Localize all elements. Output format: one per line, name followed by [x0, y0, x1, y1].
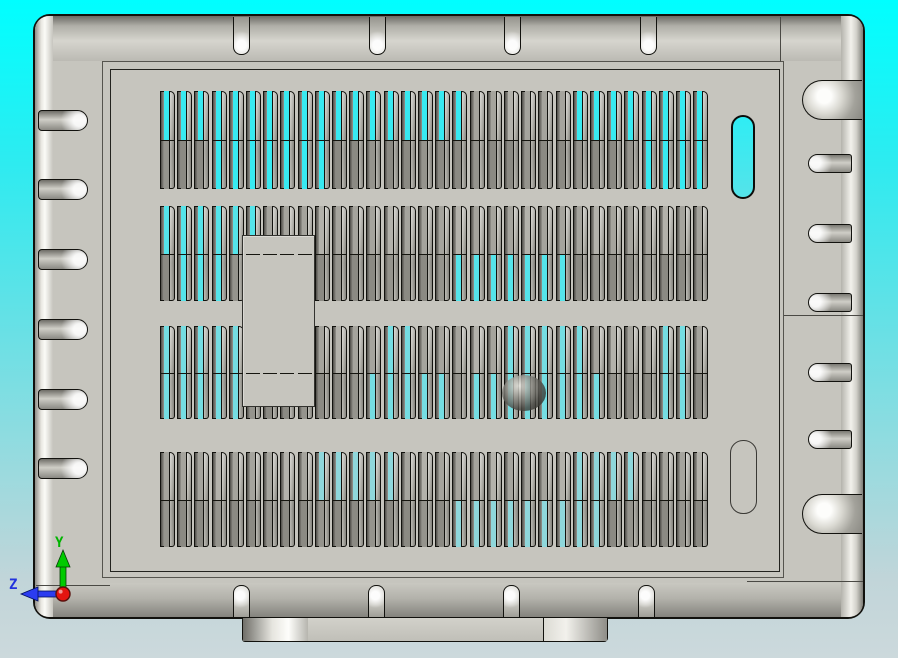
top-edge-tab: [504, 17, 521, 55]
vent-slot: [280, 91, 295, 189]
vent-slot: [366, 452, 381, 547]
vent-slot: [160, 452, 175, 547]
vent-slot-opening-top: [216, 326, 221, 373]
vent-slot-seam: [590, 500, 604, 501]
vent-slot-seam: [194, 254, 208, 255]
vent-slot-seam: [521, 500, 535, 501]
vent-slot: [504, 452, 519, 547]
vent-slot: [470, 206, 485, 301]
vent-slot-seam: [401, 500, 415, 501]
vent-slot: [349, 206, 364, 301]
vent-slot: [470, 91, 485, 189]
vent-slot-opening-bottom: [474, 500, 479, 548]
vent-slot-seam: [590, 373, 604, 374]
vent-slot: [366, 91, 381, 189]
vent-slot-seam: [212, 500, 226, 501]
vent-slot: [573, 452, 588, 547]
vent-slot-opening-bottom: [388, 500, 393, 548]
vent-slot: [349, 452, 364, 547]
vent-slot-opening-top: [302, 91, 307, 140]
left-edge-tab: [38, 179, 88, 200]
vent-slot: [470, 452, 485, 547]
oval-cutout-slot: [731, 115, 755, 199]
vent-slot-seam: [659, 254, 673, 255]
vent-slot-seam: [573, 500, 587, 501]
vent-slot: [487, 206, 502, 301]
vent-slot-seam: [435, 254, 449, 255]
vent-slot-seam: [521, 373, 535, 374]
bottom-edge-face: [35, 583, 863, 617]
vent-slot-opening-top: [646, 326, 651, 373]
bottom-edge-tab: [368, 585, 385, 617]
vent-slot: [332, 91, 347, 189]
vent-slot-opening-bottom: [560, 254, 565, 302]
vent-slot-seam: [160, 140, 174, 141]
vent-slot-seam: [556, 140, 570, 141]
vent-slot-seam: [676, 500, 690, 501]
vent-slot: [384, 326, 399, 419]
vent-slot-seam: [349, 373, 363, 374]
vent-slot: [573, 206, 588, 301]
vent-slot-seam: [418, 140, 432, 141]
vent-slot-seam: [624, 140, 638, 141]
vent-slot: [384, 452, 399, 547]
vent-slot: [246, 452, 261, 547]
vent-slot-seam: [366, 140, 380, 141]
vent-slot-seam: [659, 500, 673, 501]
vent-slot-opening-top: [474, 326, 479, 373]
vent-slot-opening-bottom: [302, 140, 307, 189]
origin-triad: Y Z: [8, 523, 100, 615]
vent-slot-opening-top: [388, 326, 393, 373]
vent-slot: [384, 91, 399, 189]
origin-point: [56, 587, 70, 601]
bottom-edge-tab: [638, 585, 655, 617]
vent-slot-opening-top: [474, 452, 479, 500]
vent-slot: [624, 452, 639, 547]
z-axis-arrowhead: [21, 587, 38, 601]
vent-slot: [315, 206, 330, 301]
vent-slot-seam: [160, 373, 174, 374]
right-edge-bump: [802, 494, 862, 534]
vent-slot-seam: [177, 254, 191, 255]
vent-slot: [229, 452, 244, 547]
vent-slot-seam: [315, 500, 329, 501]
vent-slot: [349, 326, 364, 419]
vent-slot-seam: [676, 140, 690, 141]
vent-slot: [556, 452, 571, 547]
vent-slot-seam: [229, 140, 243, 141]
vent-slot: [229, 91, 244, 189]
mounting-foot-right-segment: [543, 618, 607, 641]
vent-slot: [401, 91, 416, 189]
bottom-edge-tab: [503, 585, 520, 617]
vent-slot-opening-top: [474, 206, 479, 254]
vent-slot: [332, 206, 347, 301]
vent-slot-opening-bottom: [646, 500, 651, 548]
vent-slot: [590, 206, 605, 301]
vent-slot-seam: [349, 500, 363, 501]
vent-slot-opening-bottom: [560, 140, 565, 189]
vent-slot-seam: [470, 140, 484, 141]
vent-slot-opening-top: [302, 452, 307, 500]
vent-slot-opening-top: [216, 206, 221, 254]
vent-slot-seam: [366, 373, 380, 374]
vent-slot: [659, 206, 674, 301]
vent-slot-opening-top: [646, 91, 651, 140]
vent-slot: [194, 91, 209, 189]
vent-slot-opening-top: [646, 206, 651, 254]
vent-slot-seam: [177, 500, 191, 501]
vent-slot: [194, 452, 209, 547]
enclosure-model[interactable]: [33, 14, 865, 619]
vent-slot-opening-bottom: [474, 373, 479, 420]
vent-slot: [177, 91, 192, 189]
vent-slot-seam: [470, 500, 484, 501]
vent-slot: [160, 326, 175, 419]
vent-slot: [538, 91, 553, 189]
bottom-edge-tab: [233, 585, 250, 617]
origin-highlight: [59, 590, 63, 594]
vent-slot-seam: [263, 254, 277, 255]
mounting-foot-mid-segment: [308, 618, 543, 641]
vent-slot: [160, 91, 175, 189]
vent-slot-opening-top: [560, 206, 565, 254]
vent-slot-seam: [418, 254, 432, 255]
vent-slot-seam: [298, 140, 312, 141]
vent-slot: [573, 326, 588, 419]
vent-slot-seam: [194, 140, 208, 141]
vent-slot-opening-bottom: [216, 140, 221, 189]
vent-slot: [590, 326, 605, 419]
left-edge-tab: [38, 249, 88, 270]
vent-slot: [418, 91, 433, 189]
vent-slot: [676, 452, 691, 547]
vent-slot-seam: [487, 373, 501, 374]
vent-slot-opening-bottom: [216, 254, 221, 302]
vent-slot-opening-bottom: [474, 140, 479, 189]
vent-slot: [487, 91, 502, 189]
z-axis-label: Z: [9, 577, 17, 593]
vent-slot-seam: [573, 373, 587, 374]
vent-slot-seam: [384, 254, 398, 255]
vent-slot-seam: [435, 373, 449, 374]
vent-slot-seam: [573, 254, 587, 255]
vent-slot-seam: [280, 500, 294, 501]
vent-slot-seam: [607, 140, 621, 141]
vent-slot-seam: [452, 254, 466, 255]
vent-slot: [177, 326, 192, 419]
vent-slot-seam: [366, 500, 380, 501]
vent-slot-seam: [693, 254, 707, 255]
vent-slot-seam: [246, 254, 260, 255]
vent-slot: [521, 206, 536, 301]
vent-slot-seam: [556, 373, 570, 374]
vent-slot: [590, 452, 605, 547]
vent-slot-seam: [384, 140, 398, 141]
vent-slot: [435, 326, 450, 419]
vent-slot-seam: [384, 500, 398, 501]
vent-slot: [642, 91, 657, 189]
vent-slot-seam: [212, 140, 226, 141]
vent-slot: [607, 326, 622, 419]
vent-slot: [212, 91, 227, 189]
right-edge-tab: [808, 154, 852, 173]
vent-slot: [676, 91, 691, 189]
vent-slot: [349, 91, 364, 189]
vent-slot: [452, 91, 467, 189]
vent-slot: [315, 91, 330, 189]
vent-slot-seam: [280, 140, 294, 141]
vent-slot-seam: [418, 500, 432, 501]
vent-slot: [642, 452, 657, 547]
vent-slot-seam: [332, 140, 346, 141]
vent-slot: [693, 452, 708, 547]
vent-slot: [435, 91, 450, 189]
vent-slot: [659, 326, 674, 419]
vent-slot-seam: [642, 140, 656, 141]
vent-slot-opening-bottom: [646, 140, 651, 189]
vent-slot-seam: [332, 373, 346, 374]
vent-slot-seam: [538, 500, 552, 501]
vent-slot: [177, 206, 192, 301]
vent-slot-seam: [624, 373, 638, 374]
vent-slot-seam: [212, 254, 226, 255]
vent-slot-seam: [280, 254, 294, 255]
vent-slot: [452, 452, 467, 547]
vent-slot: [693, 326, 708, 419]
vent-slot: [504, 206, 519, 301]
right-section-divider: [784, 315, 863, 316]
vent-slot: [315, 452, 330, 547]
vent-slot-seam: [607, 373, 621, 374]
vent-slot: [556, 206, 571, 301]
vent-slot-seam: [418, 373, 432, 374]
vent-slot-opening-top: [560, 91, 565, 140]
vent-slot-opening-top: [646, 452, 651, 500]
vent-slot-opening-top: [388, 452, 393, 500]
vent-slot-opening-bottom: [388, 254, 393, 302]
vent-slot-opening-bottom: [646, 254, 651, 302]
vent-slot-opening-bottom: [560, 500, 565, 548]
vent-slot: [624, 206, 639, 301]
y-axis-label: Y: [55, 535, 64, 551]
vent-slot-seam: [263, 140, 277, 141]
vent-slot-seam: [229, 254, 243, 255]
vent-slot-seam: [401, 373, 415, 374]
vent-slot-seam: [298, 500, 312, 501]
vent-slot-seam: [194, 373, 208, 374]
vent-slot: [538, 326, 553, 419]
blank-patch: [242, 235, 315, 407]
vent-slot: [521, 452, 536, 547]
vent-slot: [212, 206, 227, 301]
vent-slot-seam: [642, 500, 656, 501]
vent-slot-opening-bottom: [388, 373, 393, 420]
vent-slot: [642, 326, 657, 419]
top-edge-tab: [233, 17, 250, 55]
vent-slot-seam: [315, 140, 329, 141]
vent-slot-opening-bottom: [560, 373, 565, 420]
vent-slot-seam: [177, 373, 191, 374]
vent-slot: [332, 326, 347, 419]
vent-slot-opening-top: [216, 91, 221, 140]
vent-slot-seam: [624, 254, 638, 255]
scribe-line: [747, 581, 863, 582]
top-edge-tab: [640, 17, 657, 55]
vent-slot: [315, 326, 330, 419]
vent-slot: [487, 326, 502, 419]
vent-slot: [384, 206, 399, 301]
vent-slot: [401, 206, 416, 301]
vent-slot-seam: [384, 373, 398, 374]
vent-slot: [401, 452, 416, 547]
vent-slot-seam: [487, 254, 501, 255]
oval-blind-slot: [730, 440, 757, 514]
left-edge-tab: [38, 110, 88, 131]
vent-slot: [194, 206, 209, 301]
vent-slot-seam: [298, 254, 312, 255]
vent-slot-seam: [349, 254, 363, 255]
vent-slot-seam: [332, 254, 346, 255]
vent-slot-seam: [676, 254, 690, 255]
vent-slot-opening-bottom: [646, 373, 651, 420]
vent-slot: [280, 452, 295, 547]
vent-slot: [332, 452, 347, 547]
vent-slot: [693, 206, 708, 301]
vent-slot-seam: [504, 254, 518, 255]
scribe-line: [780, 17, 781, 62]
vent-slot-seam: [160, 254, 174, 255]
vent-slot-seam: [177, 140, 191, 141]
right-edge-tab: [808, 224, 852, 243]
vent-slot-seam: [590, 140, 604, 141]
vent-slot-opening-top: [560, 452, 565, 500]
vent-slot-seam: [487, 140, 501, 141]
mounting-foot: [242, 618, 608, 642]
vent-slot-seam: [556, 254, 570, 255]
vent-slot-seam: [435, 140, 449, 141]
vent-slot: [676, 206, 691, 301]
vent-slot-seam: [280, 373, 294, 374]
vent-slot: [212, 452, 227, 547]
vent-slot: [624, 91, 639, 189]
vent-slot-seam: [538, 140, 552, 141]
vent-slot: [246, 91, 261, 189]
vent-slot-seam: [470, 373, 484, 374]
vent-slot-opening-top: [474, 91, 479, 140]
vent-slot-seam: [315, 254, 329, 255]
vent-slot-seam: [229, 373, 243, 374]
right-edge-tab: [808, 293, 852, 312]
vent-slot-seam: [435, 500, 449, 501]
vent-slot-seam: [160, 500, 174, 501]
vent-slot: [642, 206, 657, 301]
vent-slot-seam: [332, 500, 346, 501]
vent-slot-seam: [538, 254, 552, 255]
vent-slot: [590, 91, 605, 189]
vent-slot: [366, 206, 381, 301]
vent-slot: [263, 452, 278, 547]
vent-slot-seam: [366, 254, 380, 255]
vent-slot-opening-bottom: [302, 500, 307, 548]
vent-slot: [624, 326, 639, 419]
vent-slot: [401, 326, 416, 419]
vent-slot: [607, 452, 622, 547]
vent-slot: [556, 326, 571, 419]
vent-slot: [418, 452, 433, 547]
vent-slot-opening-top: [560, 326, 565, 373]
vent-slot-seam: [642, 254, 656, 255]
vent-slot: [659, 91, 674, 189]
vent-slot-opening-bottom: [474, 254, 479, 302]
vent-slot: [659, 452, 674, 547]
vent-slot-opening-top: [388, 91, 393, 140]
vent-slot-seam: [693, 140, 707, 141]
top-edge-face: [35, 16, 863, 61]
vent-slot-seam: [263, 500, 277, 501]
vent-slot: [538, 206, 553, 301]
vent-slot: [298, 452, 313, 547]
vent-slot: [693, 91, 708, 189]
vent-slot-seam: [246, 373, 260, 374]
vent-slot: [470, 326, 485, 419]
vent-slot-seam: [452, 373, 466, 374]
vent-slot-seam: [452, 500, 466, 501]
vent-slot-seam: [263, 373, 277, 374]
left-edge-tab: [38, 458, 88, 479]
vent-slot: [435, 452, 450, 547]
vent-slot: [504, 91, 519, 189]
left-edge-tab: [38, 389, 88, 410]
vent-slot-seam: [521, 140, 535, 141]
vent-slot-seam: [607, 500, 621, 501]
vent-slot-seam: [246, 500, 260, 501]
vent-slot-seam: [229, 500, 243, 501]
vent-slot-seam: [659, 373, 673, 374]
vent-slot: [435, 206, 450, 301]
vent-slot-seam: [349, 140, 363, 141]
vent-slot-seam: [538, 373, 552, 374]
right-edge-tab: [808, 363, 852, 382]
vent-slot-opening-top: [388, 206, 393, 254]
vent-slot-seam: [659, 140, 673, 141]
vent-slot-seam: [607, 254, 621, 255]
vent-slot: [298, 91, 313, 189]
vent-slot-seam: [246, 140, 260, 141]
vent-slot-seam: [521, 254, 535, 255]
internal-component-sphere: [502, 375, 546, 411]
cad-viewport[interactable]: Y Z: [0, 0, 898, 658]
vent-slot-seam: [624, 500, 638, 501]
vent-slot-seam: [504, 500, 518, 501]
right-edge-tab: [808, 430, 852, 449]
vent-slot: [160, 206, 175, 301]
vent-slot: [452, 206, 467, 301]
vent-slot: [487, 452, 502, 547]
vent-slot: [607, 91, 622, 189]
vent-slot-opening-bottom: [388, 140, 393, 189]
vent-slot: [538, 452, 553, 547]
vent-slot-opening-top: [216, 452, 221, 500]
top-edge-tab: [369, 17, 386, 55]
vent-slot-opening-bottom: [216, 500, 221, 548]
vent-slot-seam: [298, 373, 312, 374]
right-edge-bump: [802, 80, 862, 120]
vent-slot: [556, 91, 571, 189]
vent-slot: [263, 91, 278, 189]
vent-slot-seam: [452, 140, 466, 141]
